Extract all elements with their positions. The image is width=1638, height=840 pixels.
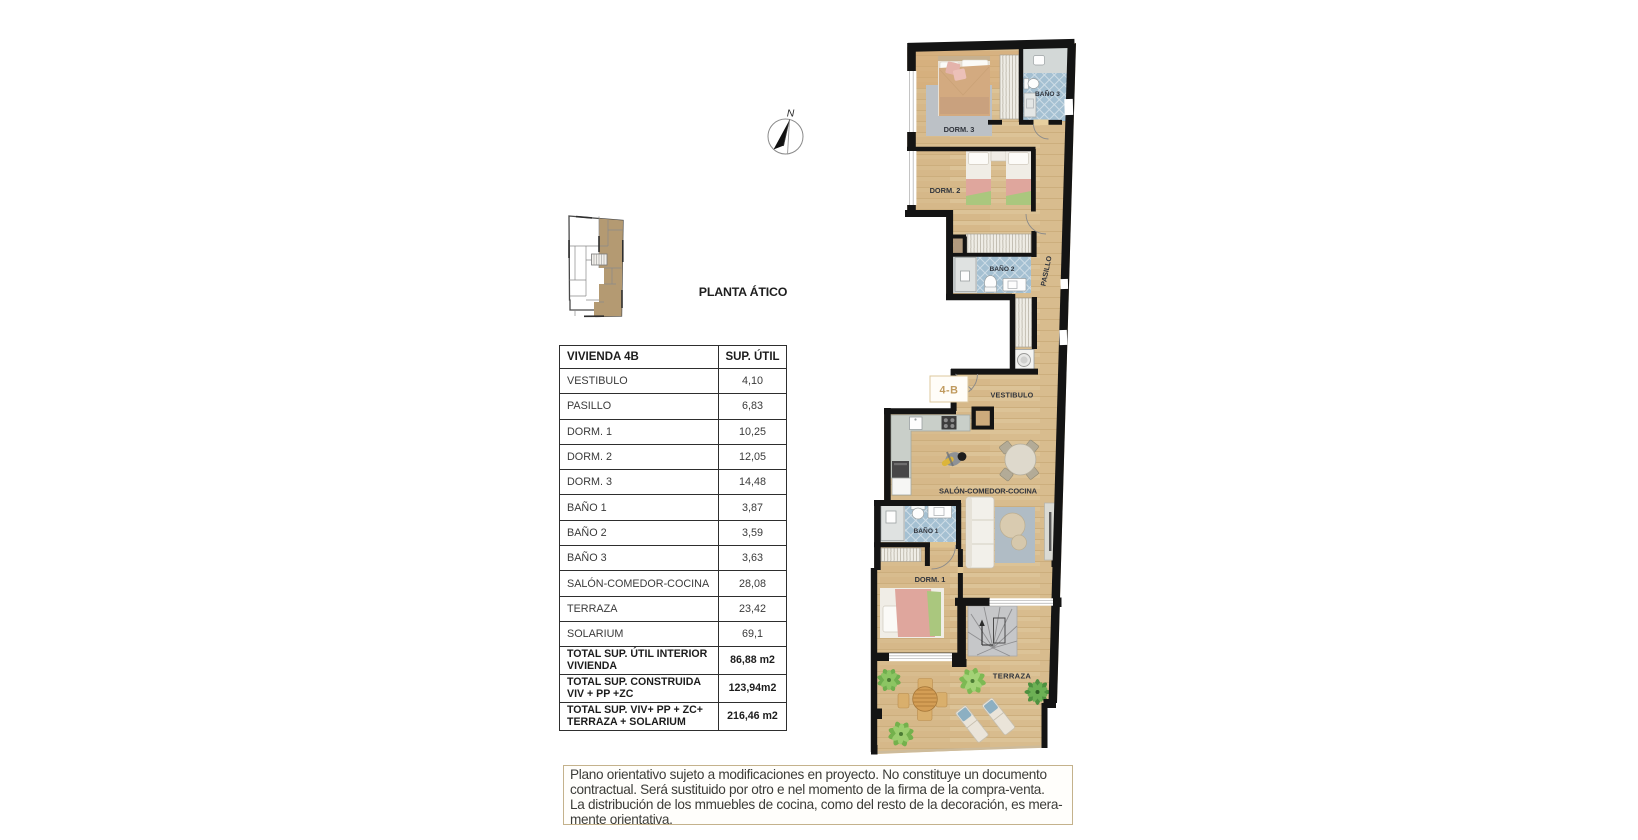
svg-text:N: N (787, 108, 795, 120)
